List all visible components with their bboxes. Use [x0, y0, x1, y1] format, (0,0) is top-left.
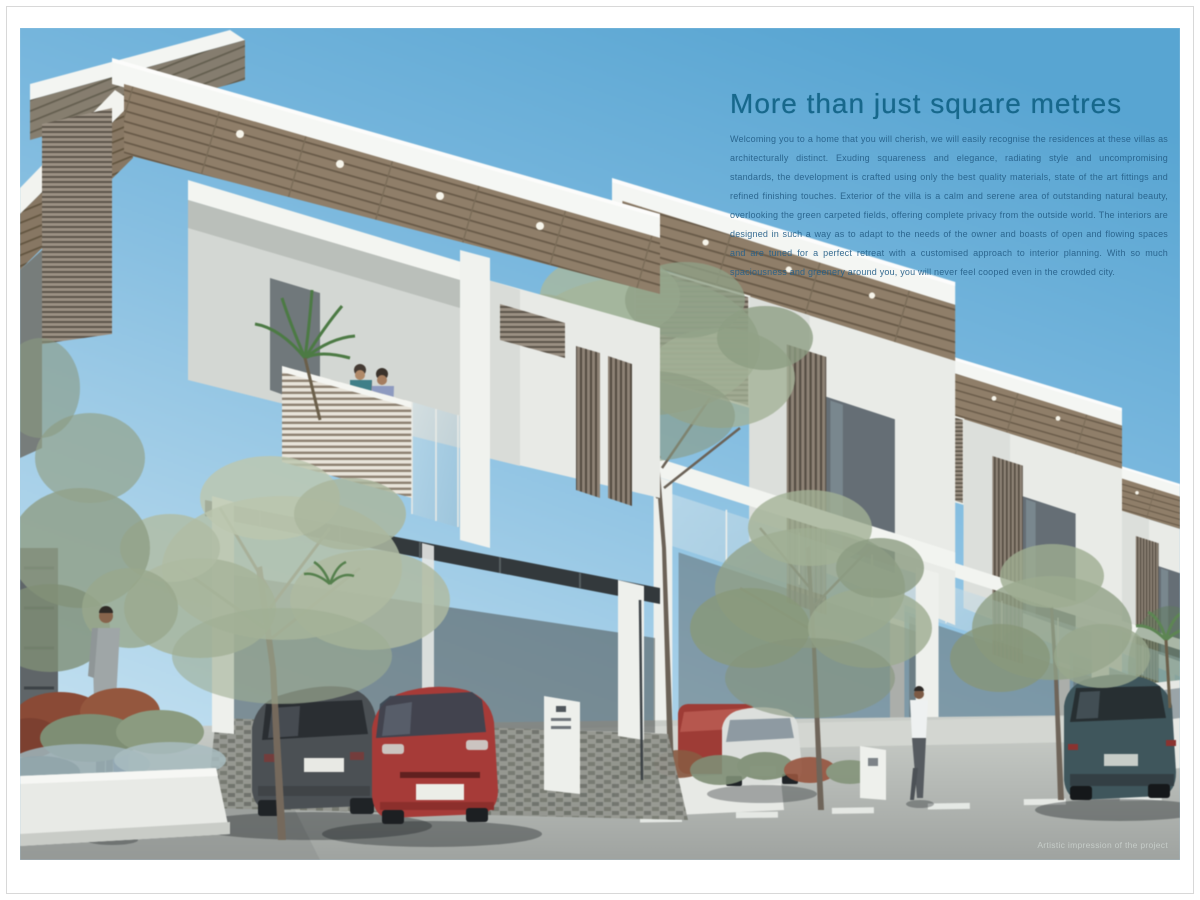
gate-post	[860, 746, 886, 800]
photo-caption: Artistic impression of the project	[1037, 840, 1168, 850]
hero-text-block: More than just square metres Welcoming y…	[730, 88, 1168, 282]
villa-rendering-photo: More than just square metres Welcoming y…	[20, 28, 1180, 860]
mailbox	[544, 696, 580, 794]
headline: More than just square metres	[730, 88, 1168, 120]
brochure-page: More than just square metres Welcoming y…	[0, 0, 1200, 900]
body-copy: Welcoming you to a home that you will ch…	[730, 130, 1168, 282]
